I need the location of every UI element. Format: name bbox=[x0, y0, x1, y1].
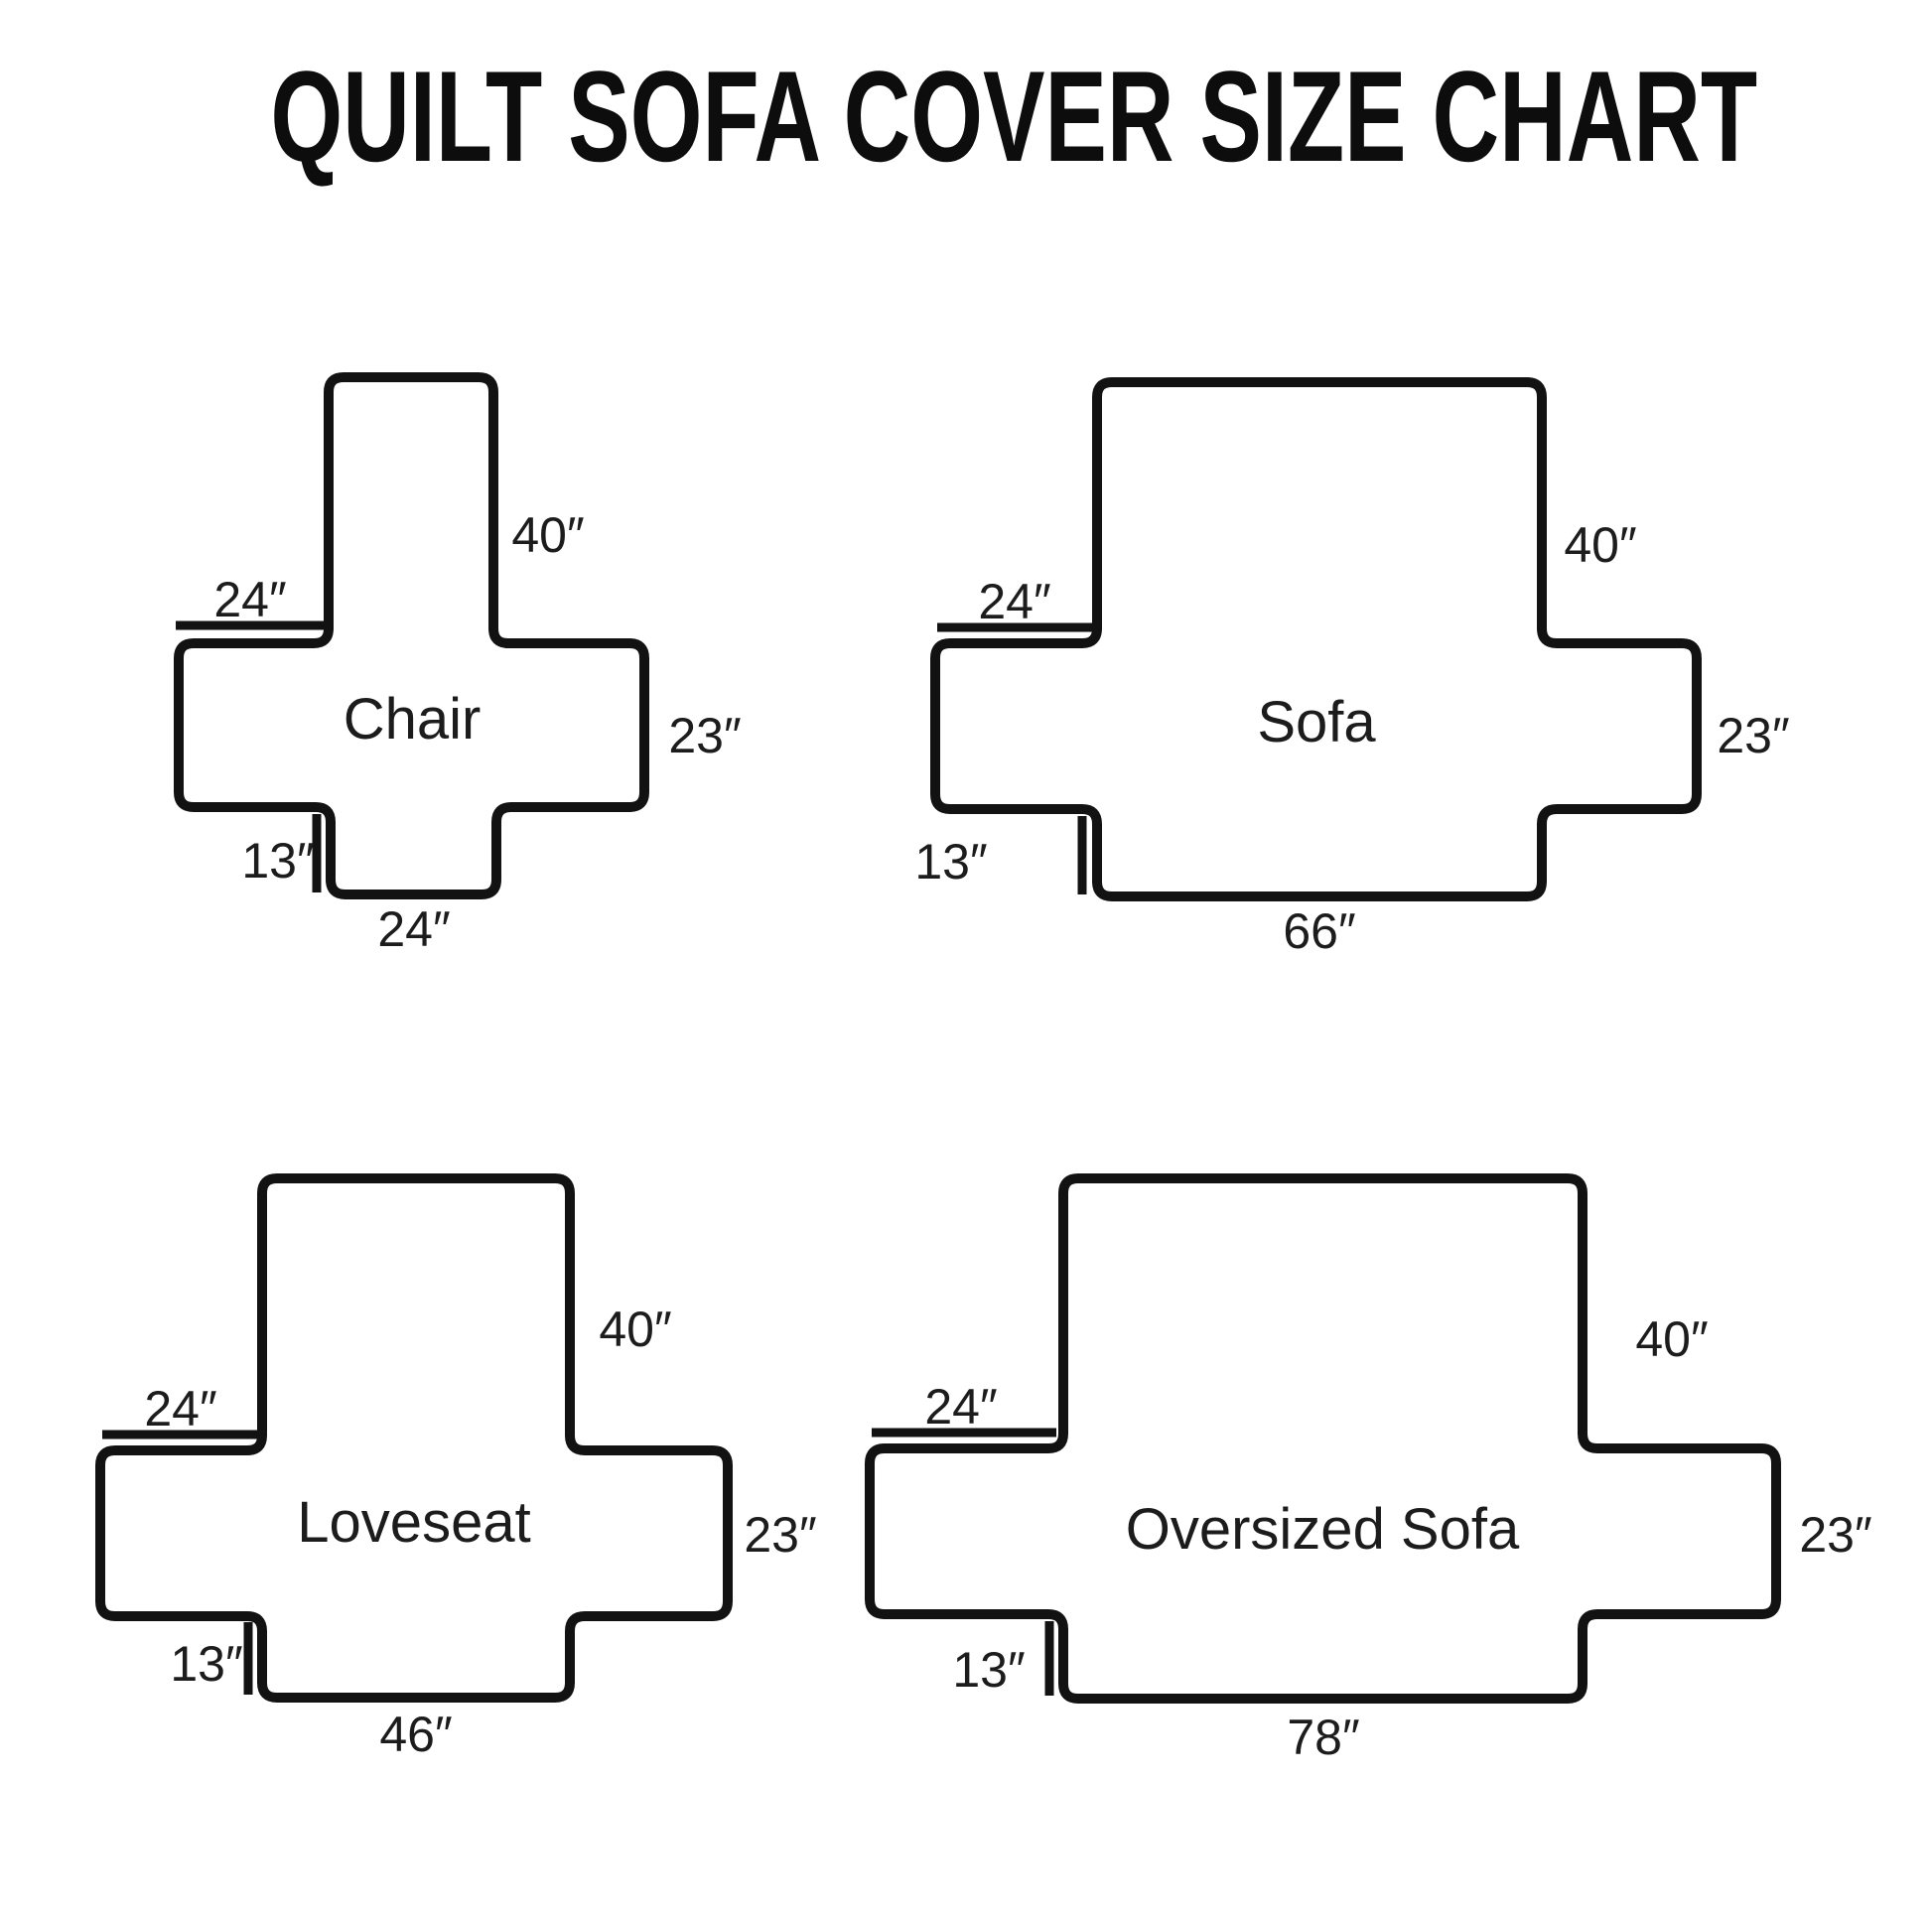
diagram-oversized-sofa: 40″24″Oversized Sofa23″13″78″ bbox=[870, 1178, 1872, 1765]
diagram-sofa: 40″24″Sofa23″13″66″ bbox=[914, 382, 1789, 959]
sofa-seat-width-label: 66″ bbox=[1283, 903, 1355, 959]
chair-arm-width-label: 24″ bbox=[213, 572, 286, 627]
sofa-back-height-label: 40″ bbox=[1564, 517, 1636, 573]
sofa-cover-outline bbox=[935, 382, 1697, 896]
sofa-arm-width-label: 24″ bbox=[978, 574, 1050, 629]
oversized-sofa-front-skirt-drop-label: 13″ bbox=[952, 1642, 1025, 1698]
oversized-sofa-name-label: Oversized Sofa bbox=[1126, 1497, 1520, 1562]
oversized-sofa-back-height-label: 40″ bbox=[1635, 1311, 1708, 1367]
diagram-loveseat: 40″24″Loveseat23″13″46″ bbox=[100, 1178, 817, 1762]
loveseat-name-label: Loveseat bbox=[297, 1490, 530, 1555]
sofa-side-height-label: 23″ bbox=[1717, 708, 1789, 763]
oversized-sofa-seat-width-label: 78″ bbox=[1287, 1710, 1359, 1765]
size-chart-canvas: 40″24″Chair23″13″24″40″24″Sofa23″13″66″4… bbox=[0, 0, 1932, 1918]
oversized-sofa-arm-width-label: 24″ bbox=[924, 1379, 997, 1435]
chair-front-skirt-drop-label: 13″ bbox=[241, 833, 314, 889]
sofa-name-label: Sofa bbox=[1257, 690, 1376, 754]
oversized-sofa-cover-outline bbox=[870, 1178, 1776, 1699]
chair-name-label: Chair bbox=[344, 687, 482, 752]
oversized-sofa-side-height-label: 23″ bbox=[1799, 1507, 1871, 1563]
diagram-chair: 40″24″Chair23″13″24″ bbox=[176, 377, 742, 957]
chair-seat-width-label: 24″ bbox=[377, 901, 450, 957]
loveseat-front-skirt-drop-label: 13″ bbox=[170, 1636, 242, 1692]
loveseat-back-height-label: 40″ bbox=[599, 1301, 671, 1357]
chair-cover-outline bbox=[179, 377, 644, 894]
sofa-front-skirt-drop-label: 13″ bbox=[914, 834, 987, 890]
chair-back-height-label: 40″ bbox=[511, 507, 584, 563]
loveseat-seat-width-label: 46″ bbox=[379, 1707, 452, 1762]
loveseat-side-height-label: 23″ bbox=[744, 1507, 816, 1563]
chair-side-height-label: 23″ bbox=[668, 708, 741, 763]
loveseat-arm-width-label: 24″ bbox=[144, 1381, 216, 1437]
